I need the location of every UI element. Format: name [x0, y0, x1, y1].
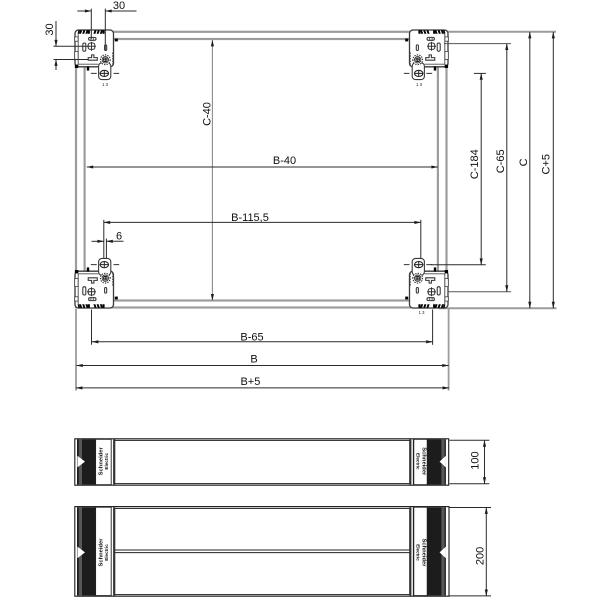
svg-text:200: 200	[474, 547, 486, 565]
svg-text:B-65: B-65	[240, 331, 263, 343]
svg-text:Electric: Electric	[104, 544, 109, 561]
svg-text:30: 30	[113, 0, 125, 12]
svg-text:1 3: 1 3	[102, 82, 108, 87]
svg-text:B-115,5: B-115,5	[231, 212, 269, 224]
svg-text:C+5: C+5	[541, 154, 553, 175]
svg-text:B: B	[250, 354, 257, 366]
svg-text:Electric: Electric	[416, 544, 421, 561]
svg-text:B-40: B-40	[273, 155, 296, 167]
svg-text:6: 6	[116, 231, 122, 243]
svg-text:Electric: Electric	[416, 453, 421, 470]
svg-text:C-65: C-65	[495, 149, 507, 173]
svg-text:30: 30	[44, 23, 56, 35]
svg-text:C-40: C-40	[202, 102, 214, 126]
svg-text:1 3: 1 3	[416, 82, 422, 87]
svg-text:Electric: Electric	[104, 453, 109, 470]
svg-text:B+5: B+5	[240, 376, 260, 388]
svg-text:C-184: C-184	[469, 149, 481, 179]
svg-text:100: 100	[470, 451, 482, 469]
svg-text:C: C	[518, 158, 530, 166]
svg-text:1 3: 1 3	[419, 310, 425, 315]
